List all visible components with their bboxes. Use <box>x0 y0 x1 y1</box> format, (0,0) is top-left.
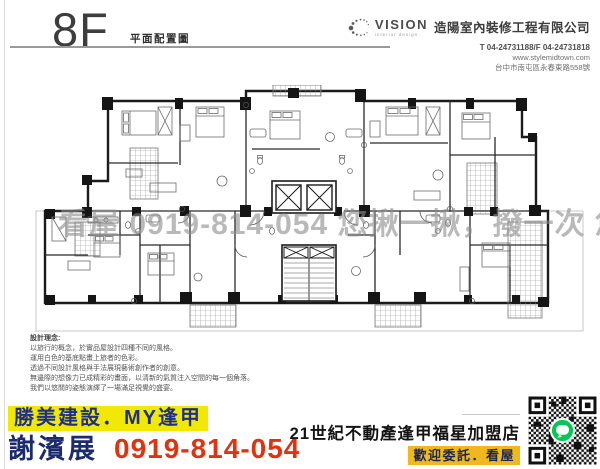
floor-subtitle: 平面配置圖 <box>130 31 190 46</box>
vision-logo-subtext: interior design <box>375 32 428 37</box>
store-divider <box>462 414 520 415</box>
vision-logo-icon <box>347 15 371 44</box>
store-name: 21世紀不動產逢甲福星加盟店 <box>290 420 520 444</box>
welcome-highlight: 歡迎委託．看屋 <box>408 445 520 465</box>
watermark-text: 看屋 0919-814-054 您揪一揪，撥一次 您我認識 <box>58 199 600 243</box>
design-notes-line: 以旅行的概念，於實品屋設計四種不同的風格。 <box>30 344 330 354</box>
design-notes-title: 設計理念: <box>30 334 330 344</box>
company-website: www.stylemidtown.com <box>480 53 590 63</box>
scan-edge-line <box>4 0 5 469</box>
company-contact: T 04-24731188/F 04-24731818 www.stylemid… <box>480 43 590 73</box>
design-notes-line: 運用白色的基底點畫上旅者的色彩。 <box>30 354 330 364</box>
line-icon <box>551 419 574 442</box>
company-address: 台中市南屯區永春東路558號 <box>480 63 590 73</box>
design-notes-line: 透過不同設計風格與手法展現藝術創作者的創意。 <box>30 364 330 374</box>
header-underline <box>10 46 390 48</box>
company-phone: T 04-24731188/F 04-24731818 <box>480 43 590 53</box>
flyer-page: 8F 平面配置圖 VISION interior design 造陽室內裝修工程… <box>0 0 600 469</box>
qr-code <box>526 394 599 467</box>
agent-row: 謝濱展 0919-814-054 <box>8 427 300 466</box>
agent-name: 謝濱展 <box>8 427 98 466</box>
company-header: VISION interior design 造陽室內裝修工程有限公司 <box>347 15 590 44</box>
company-name: 造陽室內裝修工程有限公司 <box>434 17 590 36</box>
welcome-text: 歡迎委託．看屋 <box>408 446 520 465</box>
brand-highlight: 勝美建設．MY逢甲 <box>8 401 208 430</box>
floor-label: 8F <box>52 2 109 57</box>
vision-logo-text: VISION <box>375 18 428 31</box>
design-notes-line: 我們以悠閒的姿態演繹了一場滿足視覺的盛宴。 <box>30 384 330 394</box>
design-notes: 設計理念: 以旅行的概念，於實品屋設計四種不同的風格。 運用白色的基底點畫上旅者… <box>30 334 330 394</box>
agent-phone: 0919-814-054 <box>114 433 300 465</box>
design-notes-line: 無邊際的想像力已成精彩的畫面，以清新的氣質注入空間的每一個角落。 <box>30 374 330 384</box>
